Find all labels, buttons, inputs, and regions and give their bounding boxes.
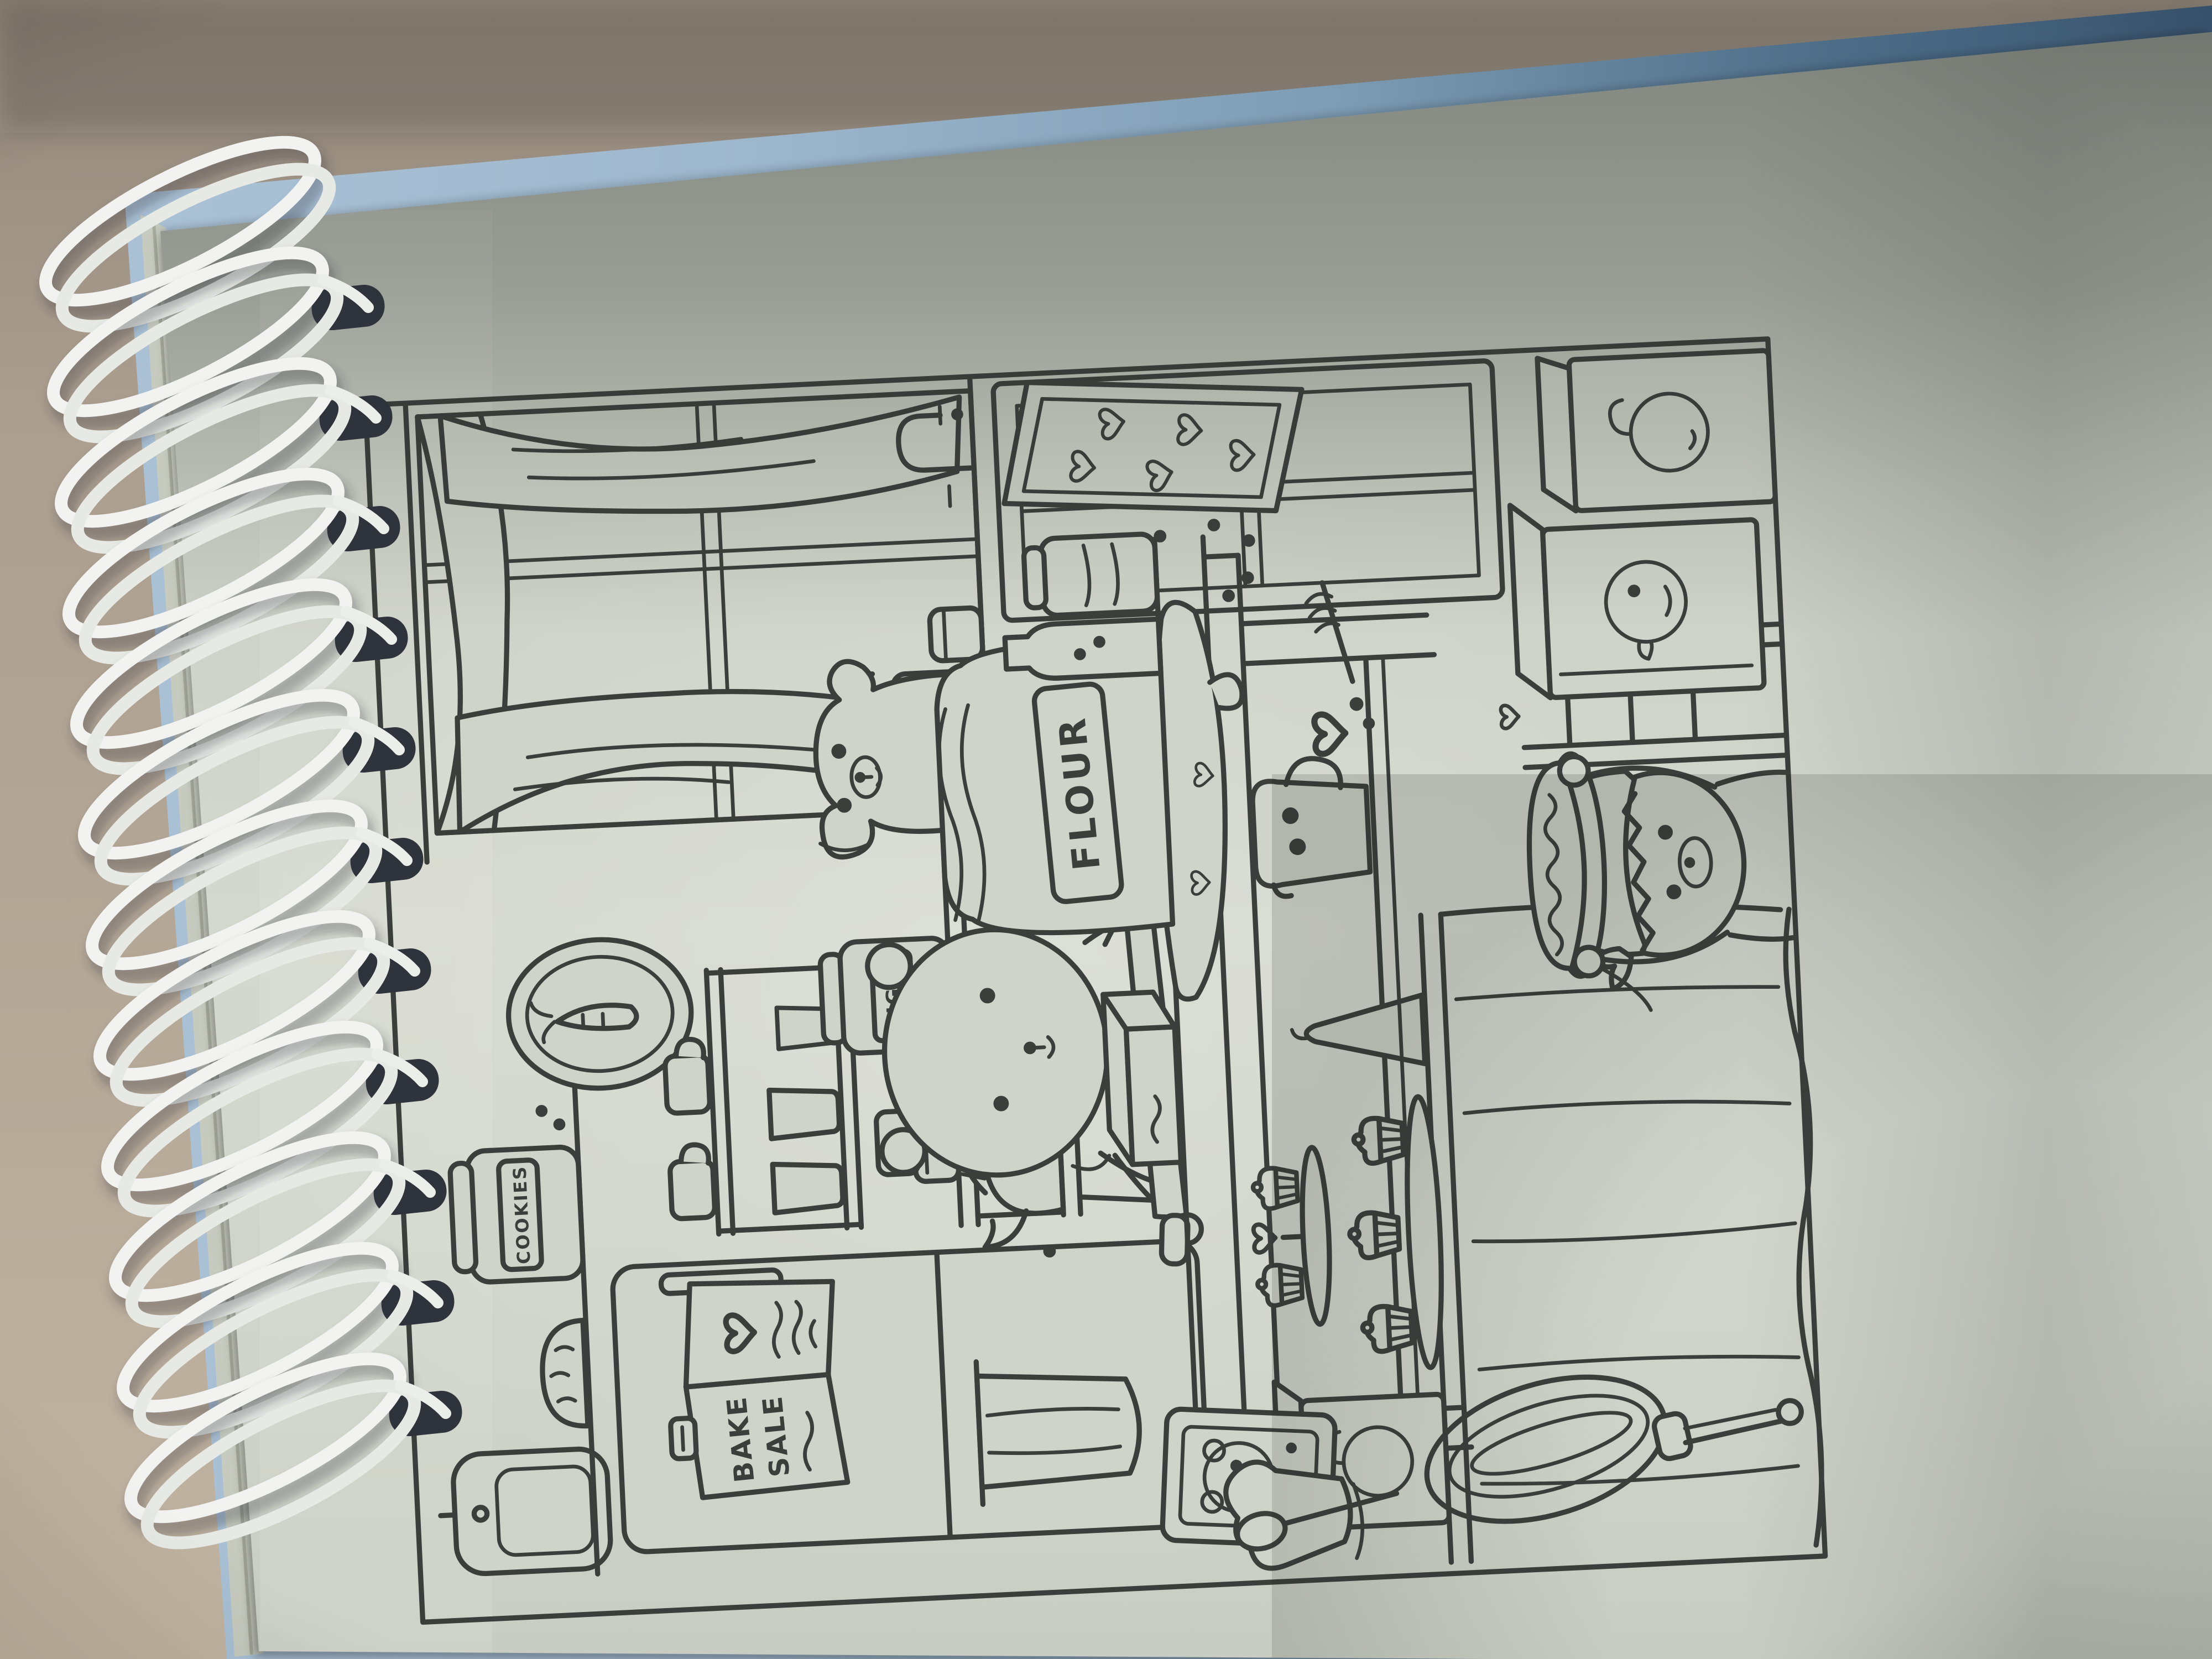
vignette (0, 0, 2212, 1659)
photo-scene: COOKIES BAKE SALE (0, 0, 2212, 1659)
